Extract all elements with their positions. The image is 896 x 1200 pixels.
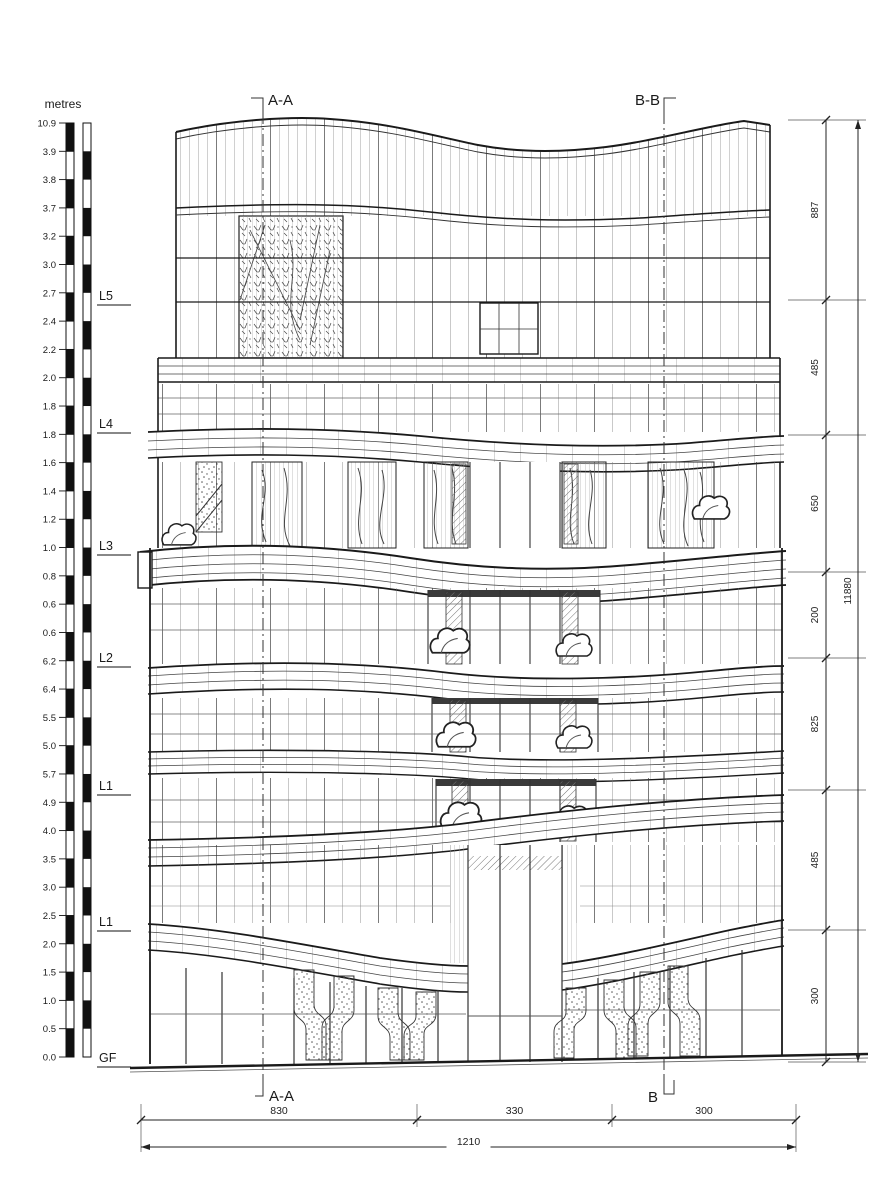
scale-tick-label: 3.0	[43, 883, 56, 894]
scale-tick-label: 2.4	[43, 317, 56, 328]
scale-segment	[66, 406, 74, 434]
scale-segment	[83, 661, 91, 689]
arrowhead	[787, 1144, 796, 1150]
scale-segment	[83, 774, 91, 802]
dim-label: 887	[810, 201, 821, 218]
section-marker-aa-bottom: A-A	[269, 1088, 294, 1105]
scale-segment	[66, 972, 74, 1000]
scale-segment	[66, 746, 74, 774]
scale-segment	[66, 576, 74, 604]
scale-tick-label: 1.0	[43, 996, 56, 1007]
scale-tick-label: 1.4	[43, 486, 56, 497]
scale-segment	[66, 180, 74, 208]
level-mid	[150, 698, 782, 752]
dim-label: 330	[506, 1105, 524, 1117]
scale-tick-label: 5.0	[43, 741, 56, 752]
scale-tick-label: 4.9	[43, 798, 56, 809]
scale-tick-label: 5.7	[43, 769, 56, 780]
balcony-band-mid	[148, 750, 784, 782]
arrowhead	[855, 1053, 861, 1062]
scale-tick-label: 6.2	[43, 656, 56, 667]
dim-label: 825	[810, 715, 821, 732]
building-facade	[130, 112, 868, 1072]
dim-label: 300	[695, 1105, 713, 1117]
scale-tick-label: 2.0	[43, 939, 56, 950]
dim-label: 200	[810, 606, 821, 623]
section-marker-aa-top: A-A	[268, 92, 293, 109]
scale-tick-label: 6.4	[43, 685, 56, 696]
scale-bar: metres10.93.93.83.73.23.02.72.42.22.01.8…	[38, 97, 92, 1064]
scale-tick-label: 3.0	[43, 260, 56, 271]
dim-label: 485	[810, 851, 821, 868]
dim-total-label: 1210	[457, 1136, 481, 1148]
level-label: L4	[99, 417, 113, 431]
scale-tick-label: 5.5	[43, 713, 56, 724]
level-label: L5	[99, 289, 113, 303]
level-label: GF	[99, 1051, 117, 1065]
dim-label: 485	[810, 359, 821, 376]
scale-segment	[83, 378, 91, 406]
winter-garden-level	[150, 462, 782, 548]
scale-segment	[83, 944, 91, 972]
scale-tick-label: 1.5	[43, 968, 56, 979]
section-marker-bb-top: B-B	[635, 92, 660, 109]
dimension-lines-bottom: 8303303001210	[137, 1104, 800, 1152]
scale-segment	[83, 434, 91, 462]
scale-segment	[83, 491, 91, 519]
scale-segment	[66, 519, 74, 547]
scale-tick-label: 2.2	[43, 345, 56, 356]
scale-segment	[66, 915, 74, 943]
dim-label: 650	[810, 495, 821, 512]
level-labels: L5L4L3L2L1L1GF	[97, 289, 131, 1067]
scale-segment	[66, 236, 74, 264]
scale-segment	[83, 604, 91, 632]
scale-tick-label: 4.0	[43, 826, 56, 837]
scale-segment	[83, 151, 91, 179]
scale-segment	[66, 689, 74, 717]
section-marker-b-bottom: B	[648, 1089, 658, 1106]
dim-total-label: 11880	[843, 577, 854, 605]
scale-tick-label: 0.8	[43, 571, 56, 582]
scale-segment	[83, 265, 91, 293]
scale-tick-label: 3.2	[43, 232, 56, 243]
scale-segment	[83, 717, 91, 745]
dimension-lines-right: 88748565020082548530011880	[788, 116, 866, 1066]
scale-tick-label: 3.9	[43, 147, 56, 158]
scale-segment	[66, 1029, 74, 1057]
scale-tick-label: 0.6	[43, 600, 56, 611]
scale-tick-label: 1.8	[43, 430, 56, 441]
scale-segment	[66, 802, 74, 830]
scale-bar-right	[83, 123, 91, 1057]
scale-tick-label: 0.0	[43, 1053, 56, 1064]
scale-segment	[83, 1000, 91, 1028]
green-wall-strip	[239, 216, 343, 358]
dim-label: 830	[270, 1105, 288, 1117]
elevation-sheet: A-A B-B A-A B metres10.93.93.83.73.23.02…	[0, 0, 896, 1200]
level-label: L3	[99, 539, 113, 553]
arrowhead	[141, 1144, 150, 1150]
scale-segment	[83, 831, 91, 859]
scale-segment	[83, 887, 91, 915]
level-label: L1	[99, 779, 113, 793]
scale-segment	[83, 208, 91, 236]
scale-segment	[66, 463, 74, 491]
scale-segment	[66, 293, 74, 321]
scale-tick-label: 1.0	[43, 543, 56, 554]
scale-tick-label: 1.6	[43, 458, 56, 469]
scale-tick-label: 1.2	[43, 515, 56, 526]
scale-tick-label: 0.6	[43, 628, 56, 639]
facade-panel	[480, 303, 538, 354]
scale-tick-label: 2.5	[43, 911, 56, 922]
scale-segment	[83, 321, 91, 349]
level-label: L2	[99, 651, 113, 665]
scale-tick-label: 3.5	[43, 854, 56, 865]
scale-segment	[83, 548, 91, 576]
scale-segment	[66, 632, 74, 660]
scale-title: metres	[45, 97, 82, 111]
scale-segment	[66, 349, 74, 377]
scale-tick-label: 2.7	[43, 288, 56, 299]
scale-tick-label: 3.7	[43, 203, 56, 214]
dim-label: 300	[810, 987, 821, 1004]
elevation-drawing: A-A B-B A-A B metres10.93.93.83.73.23.02…	[0, 0, 896, 1200]
level-label: L1	[99, 915, 113, 929]
scale-tick-label: 0.5	[43, 1024, 56, 1035]
arrowhead	[855, 120, 861, 129]
scale-segment	[66, 123, 74, 151]
scale-tick-label: 2.0	[43, 373, 56, 384]
scale-tick-label: 10.9	[38, 119, 57, 130]
level-l2	[150, 588, 782, 664]
scale-tick-label: 3.8	[43, 175, 56, 186]
scale-segment	[66, 859, 74, 887]
scale-tick-label: 1.8	[43, 402, 56, 413]
